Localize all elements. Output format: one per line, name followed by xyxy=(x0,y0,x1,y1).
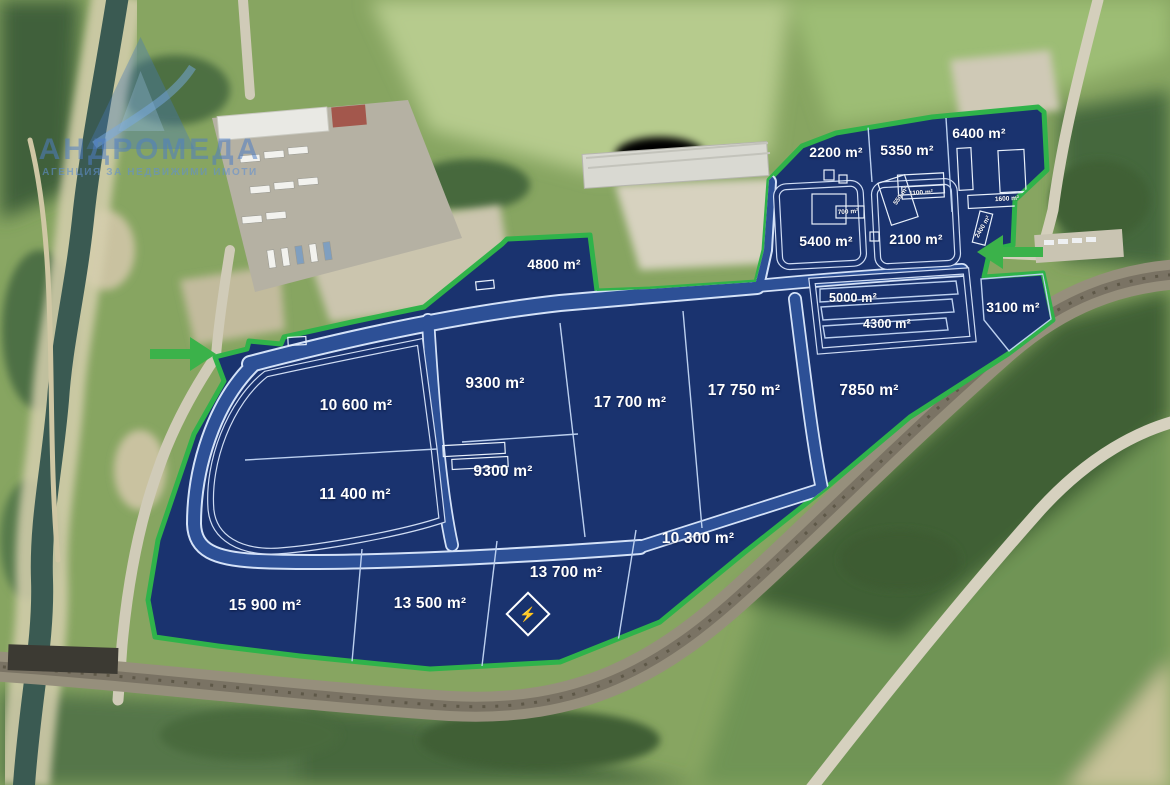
plot-area-label-13700: 13 700 m² xyxy=(530,564,602,582)
railway-bridge xyxy=(8,644,119,674)
plot-area-label-6400: 6400 m² xyxy=(952,125,1006,141)
plot-area-label-2100: 2100 m² xyxy=(889,231,943,247)
plot-area-label-9300b: 9300 m² xyxy=(473,463,532,481)
plot-area-label-17700: 17 700 m² xyxy=(594,394,666,412)
entrance-west-arrow-icon xyxy=(150,337,218,371)
plot-area-label-5400: 5400 m² xyxy=(799,233,853,249)
plot-area-label-10300: 10 300 m² xyxy=(662,530,734,548)
entrance-northeast-arrow-icon xyxy=(975,235,1043,269)
satellite-map xyxy=(0,0,1170,785)
plot-area-label-7850: 7850 m² xyxy=(839,382,898,400)
plot-area-label-10600: 10 600 m² xyxy=(320,397,392,415)
plot-area-label-9300a: 9300 m² xyxy=(465,375,524,393)
building-area-label-b1600: 1600 m² xyxy=(995,195,1020,203)
plot-area-label-4300: 4300 m² xyxy=(863,317,911,331)
plot-area-label-15900: 15 900 m² xyxy=(229,597,301,615)
plot-area-label-17750: 17 750 m² xyxy=(708,382,780,400)
plot-area-label-11400: 11 400 m² xyxy=(319,486,391,504)
aerial-site-plan: АНДРОМЕДА АГЕНЦИЯ ЗА НЕДВИЖИМИ ИМОТИ 220… xyxy=(0,0,1170,785)
plot-area-label-13500: 13 500 m² xyxy=(394,595,466,613)
building-area-label-b700: 700 m² xyxy=(837,208,858,216)
plot-area-label-4800: 4800 m² xyxy=(527,256,581,272)
plot-area-label-3100: 3100 m² xyxy=(986,299,1040,315)
plot-area-label-2200: 2200 m² xyxy=(809,144,863,160)
red-roof-building xyxy=(331,105,367,128)
plot-area-label-5350: 5350 m² xyxy=(880,142,934,158)
plot-area-label-5000: 5000 m² xyxy=(829,291,877,305)
